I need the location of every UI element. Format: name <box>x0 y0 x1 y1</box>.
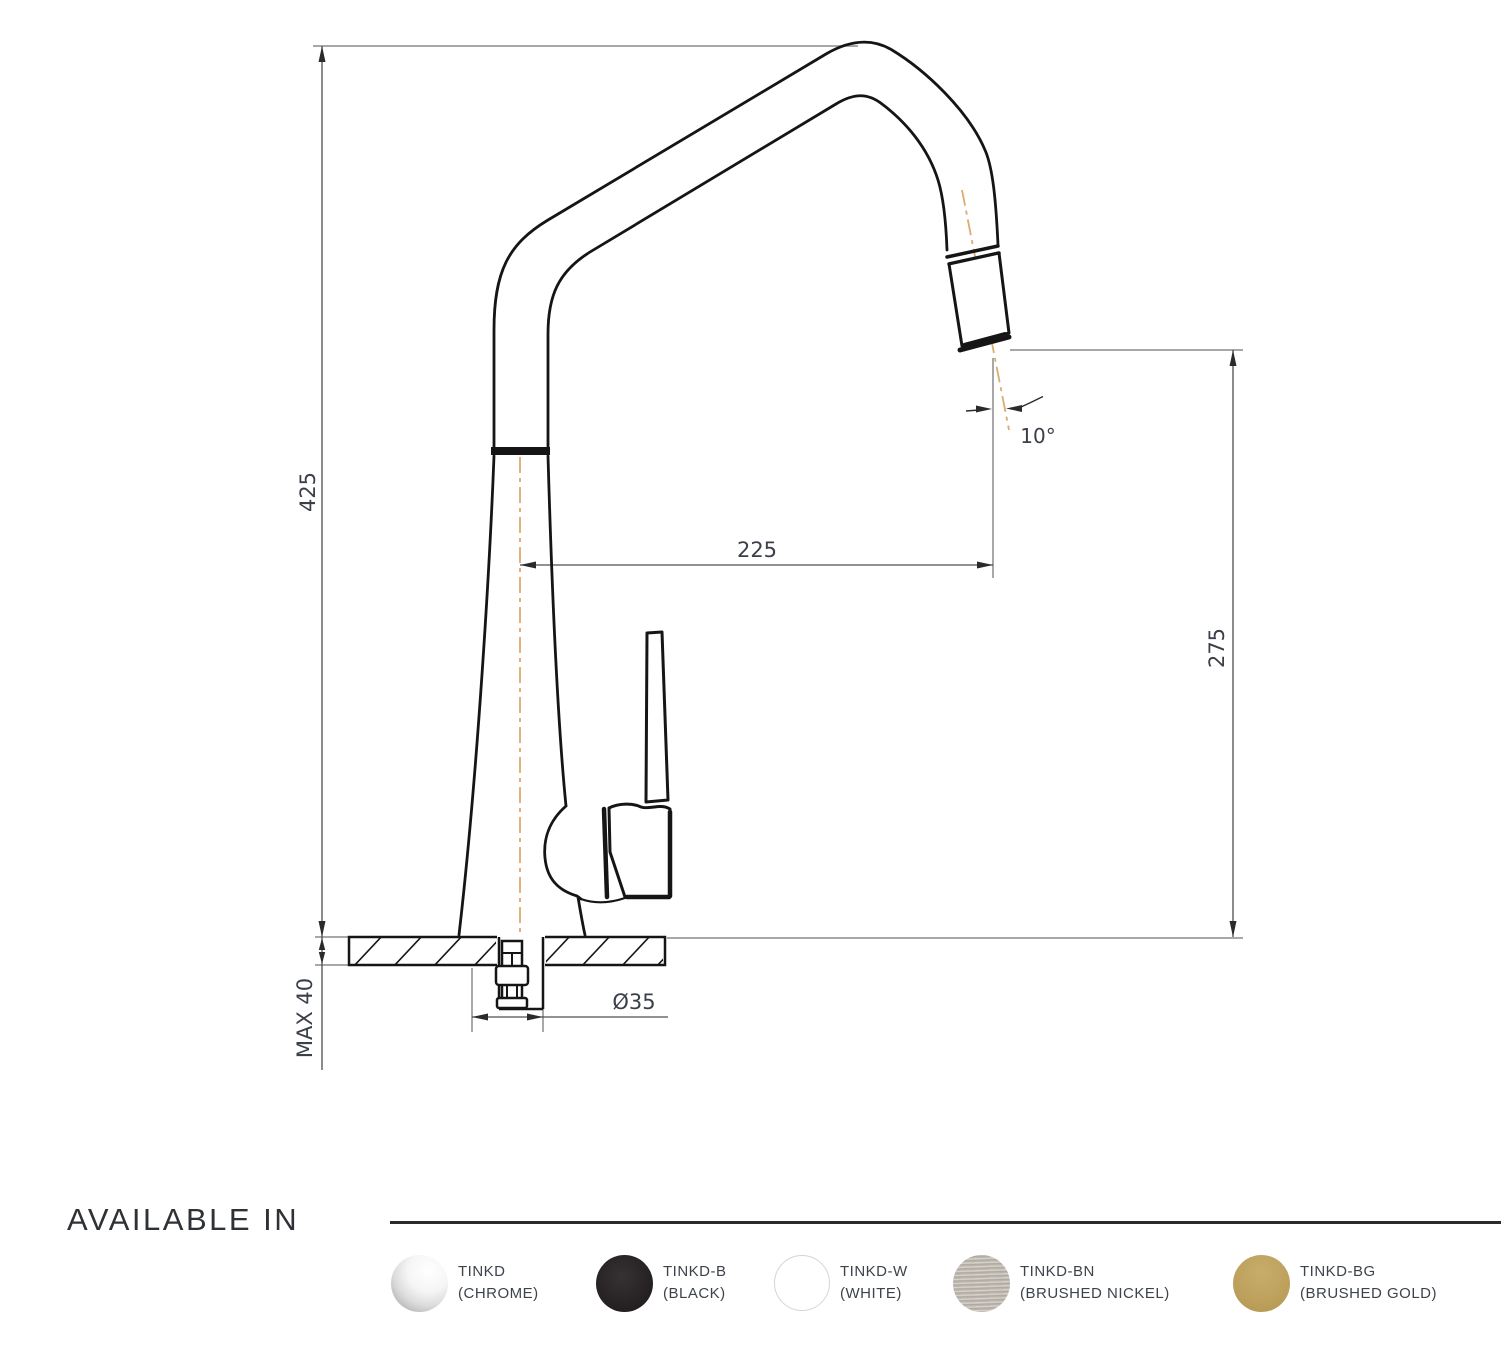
finish-item-white: TINKD-W (WHITE) <box>774 1255 908 1311</box>
finish-name: (BLACK) <box>663 1283 727 1305</box>
finish-name: (CHROME) <box>458 1283 539 1305</box>
finish-item-black: TINKD-B (BLACK) <box>596 1255 727 1312</box>
mounting-shank <box>496 941 528 1008</box>
handle-housing-front-edge <box>604 809 607 897</box>
finish-name: (WHITE) <box>840 1283 908 1305</box>
shank-nut-lower <box>497 998 527 1008</box>
finish-item-chrome: TINKD (CHROME) <box>391 1255 539 1312</box>
finish-code: TINKD-BN <box>1020 1261 1170 1283</box>
handle-housing <box>609 804 670 897</box>
dim-overall-height: 425 <box>296 472 320 512</box>
spray-head-body <box>949 253 1009 346</box>
arrow-425-top <box>319 46 326 62</box>
shank-nut-upper <box>496 966 528 985</box>
angle-tail-right <box>1020 397 1043 408</box>
dim-spray-angle: 10° <box>1020 424 1055 448</box>
finish-code: TINKD <box>458 1261 539 1283</box>
riser-joint-ring <box>491 447 550 455</box>
finish-name: (BRUSHED NICKEL) <box>1020 1283 1170 1305</box>
brushed-nickel-swatch <box>953 1255 1010 1312</box>
dimension-arrows <box>319 46 1237 1021</box>
dim-spout-height: 275 <box>1205 628 1229 668</box>
spec-sheet: 425 MAX 40 275 225 Ø35 10° AVAILABLE IN … <box>0 0 1501 1362</box>
finish-item-brushed-gold: TINKD-BG (BRUSHED GOLD) <box>1233 1255 1437 1312</box>
dimension-lines <box>322 46 1233 1070</box>
arrow-o35-left <box>472 1014 488 1021</box>
angle-tail-left <box>966 410 979 411</box>
spout-outer-edge <box>494 42 998 452</box>
white-swatch <box>774 1255 830 1311</box>
finish-code: TINKD-W <box>840 1261 908 1283</box>
arrow-225-left <box>520 562 536 569</box>
arrow-425-bottom <box>319 921 326 937</box>
black-swatch <box>596 1255 653 1312</box>
arrow-275-top <box>1230 350 1237 366</box>
finish-code: TINKD-B <box>663 1261 727 1283</box>
chrome-swatch <box>391 1255 448 1312</box>
finish-code: TINKD-BG <box>1300 1261 1437 1283</box>
faucet-outline <box>459 42 1009 935</box>
extension-lines <box>313 46 1243 1032</box>
arrow-o35-right <box>527 1014 543 1021</box>
finish-item-brushed-nickel: TINKD-BN (BRUSHED NICKEL) <box>953 1255 1170 1312</box>
dim-hole-diameter: Ø35 <box>612 990 655 1014</box>
arrow-275-bottom <box>1230 921 1237 937</box>
finish-name: (BRUSHED GOLD) <box>1300 1283 1437 1305</box>
arrow-max40-top <box>319 938 325 950</box>
faucet-technical-drawing: 425 MAX 40 275 225 Ø35 10° <box>0 0 1501 1362</box>
valve-bulge <box>545 806 581 899</box>
brushed-gold-swatch <box>1233 1255 1290 1312</box>
body-left-edge <box>459 456 494 935</box>
body-right-edge-lower <box>578 897 585 935</box>
arrow-angle-left <box>976 406 992 413</box>
dim-spout-reach: 225 <box>737 538 777 562</box>
available-in-title: AVAILABLE IN <box>67 1202 299 1238</box>
dim-max-thickness: MAX 40 <box>293 978 317 1058</box>
arrow-angle-right <box>1006 405 1022 412</box>
arrow-225-right <box>977 562 993 569</box>
valve-underside <box>581 898 625 902</box>
spout-inner-edge <box>548 96 947 452</box>
handle-lever <box>646 632 668 802</box>
body-right-edge-upper <box>548 456 566 806</box>
section-divider <box>390 1221 1501 1224</box>
arrow-max40-bottom <box>319 952 325 964</box>
